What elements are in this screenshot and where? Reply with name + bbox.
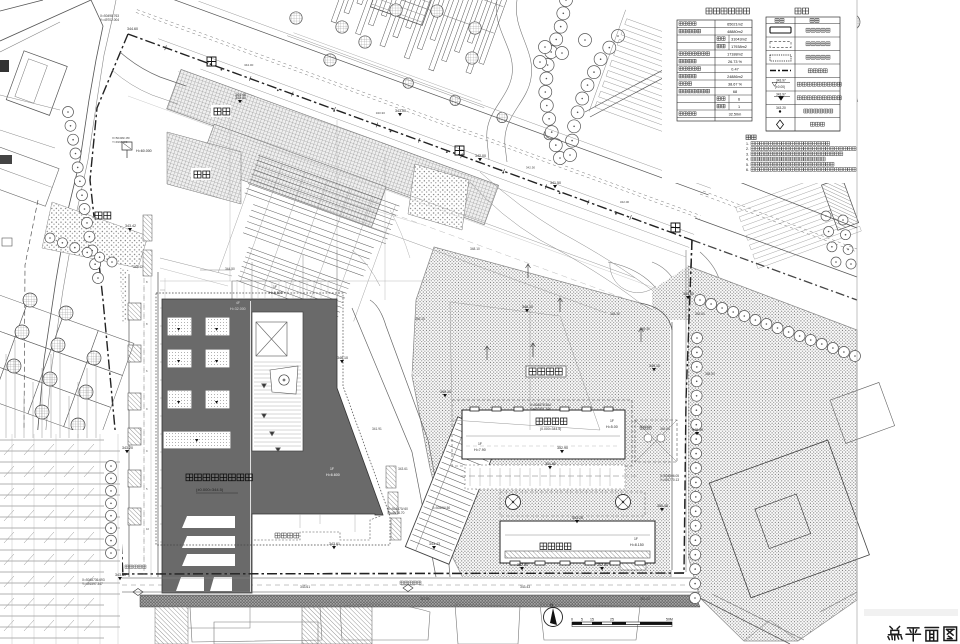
svg-text:343.20: 343.20 [776,106,786,110]
svg-text:1.: 1. [746,142,749,146]
svg-text:343.61: 343.61 [329,542,340,546]
svg-text:H=6.600: H=6.600 [326,473,340,477]
svg-text:Y=4998.2/9: Y=4998.2/9 [112,140,128,144]
svg-text:1F: 1F [610,419,614,423]
svg-text:346.10: 346.10 [415,317,425,321]
svg-text:31043m2: 31043m2 [731,38,747,42]
svg-text:1F: 1F [478,442,482,446]
svg-text:5: 5 [581,618,583,622]
svg-text:Y=491861.340: Y=491861.340 [530,407,551,411]
svg-text:343.60: 343.60 [683,292,694,296]
svg-text:348.10: 348.10 [522,305,533,309]
svg-text:349.30: 349.30 [640,327,650,331]
svg-text:Y=49702.004: Y=49702.004 [100,18,119,22]
svg-text:348.10: 348.10 [470,247,480,251]
svg-text:343.42: 343.42 [133,265,143,269]
svg-text:343.61: 343.61 [300,585,310,589]
svg-text:0: 0 [571,618,573,622]
svg-text:344.50: 344.50 [225,267,235,271]
svg-text:343.42: 343.42 [125,224,136,228]
svg-text:349.10: 349.10 [440,390,451,394]
svg-text:352.60: 352.60 [640,597,650,601]
svg-text:H=32.000: H=32.000 [230,307,246,311]
svg-text:342.50: 342.50 [526,166,536,170]
svg-text:(±0.00): (±0.00) [775,85,785,89]
svg-text:H=60.000: H=60.000 [136,149,152,153]
svg-text:343.20: 343.20 [122,446,133,450]
svg-text:65021m2: 65021m2 [727,23,743,27]
svg-text:343.97: 343.97 [776,93,786,97]
svg-text:1F: 1F [273,285,277,289]
svg-text:0.47: 0.47 [731,68,738,72]
svg-text:H=5.00: H=5.00 [606,425,618,429]
svg-text:350.45: 350.45 [657,504,668,508]
svg-text:343.60: 343.60 [695,312,705,316]
svg-text:341.50: 341.50 [550,181,561,185]
svg-text:Y=491770.13: Y=491770.13 [660,478,679,482]
svg-text:348.30: 348.30 [692,428,703,432]
svg-text:344.60: 344.60 [127,27,138,31]
svg-text:68: 68 [733,90,737,94]
svg-text:343.60: 343.60 [115,573,126,577]
svg-text:352.60: 352.60 [517,563,528,567]
svg-text:5.: 5. [746,163,749,167]
svg-text:48880m2: 48880m2 [727,30,743,34]
svg-text:10: 10 [146,527,150,531]
svg-text:2.: 2. [746,147,749,151]
svg-text:343.30: 343.30 [376,111,386,115]
svg-text:3.: 3. [746,152,749,156]
svg-text:343.00: 343.00 [395,109,406,113]
svg-text:352.60: 352.60 [597,563,608,567]
svg-text:3F: 3F [410,371,414,375]
svg-text:38.67 %: 38.67 % [728,83,743,87]
svg-text:1: 1 [738,105,740,109]
svg-text:25: 25 [610,618,614,622]
svg-text:15: 15 [590,618,594,622]
svg-text:349.10: 349.10 [649,364,660,368]
svg-text:17188m2: 17188m2 [727,53,743,57]
svg-text:4.: 4. [746,158,749,162]
svg-text:346.10: 346.10 [337,356,348,360]
svg-text:Y=49/76.70: Y=49/76.70 [388,511,405,515]
svg-text:343.61: 343.61 [398,467,408,471]
svg-text:344.40: 344.40 [235,93,246,97]
svg-text:32.50m: 32.50m [729,113,742,117]
svg-text:6.: 6. [746,168,749,172]
svg-text:H=8.150: H=8.150 [630,543,644,547]
svg-text:H=17.000: H=17.000 [406,377,422,381]
svg-text:349.90: 349.90 [660,427,670,431]
svg-text:344.00: 344.00 [244,63,254,67]
svg-text:351.80: 351.80 [545,462,556,466]
svg-text:(±0.000=344.5): (±0.000=344.5) [196,487,224,492]
svg-text:(0.000=344.5): (0.000=344.5) [540,427,561,431]
svg-text:343.43: 343.43 [520,585,530,589]
svg-text:352.90: 352.90 [557,446,568,450]
svg-text:24886m2: 24886m2 [727,75,743,79]
svg-text:343.43: 343.43 [429,542,440,546]
svg-text:348.30: 348.30 [610,312,620,316]
svg-text:341.91: 341.91 [372,427,382,431]
svg-text:Y=491597.347: Y=491597.347 [82,582,103,586]
svg-text:26.73 %: 26.73 % [728,60,743,64]
svg-text:1F: 1F [634,537,638,541]
svg-text:H=6.600: H=6.600 [269,291,283,295]
svg-text:17938m2: 17938m2 [731,45,747,49]
svg-text:X=50406/,50: X=50406/,50 [432,506,450,510]
svg-text:348.50: 348.50 [705,372,715,376]
svg-text:6: 6 [738,98,740,102]
svg-text:342.00: 342.00 [620,200,630,204]
svg-text:343.97: 343.97 [776,79,786,83]
svg-text:1F: 1F [330,467,334,471]
svg-text:342.00: 342.00 [475,154,486,158]
svg-text:H=7.90: H=7.90 [474,448,486,452]
svg-text:343.50: 343.50 [420,597,430,601]
svg-text:N: N [550,603,553,608]
svg-text:50M: 50M [666,618,673,622]
svg-text:353.20: 353.20 [572,516,583,520]
svg-text:4F: 4F [236,301,240,305]
